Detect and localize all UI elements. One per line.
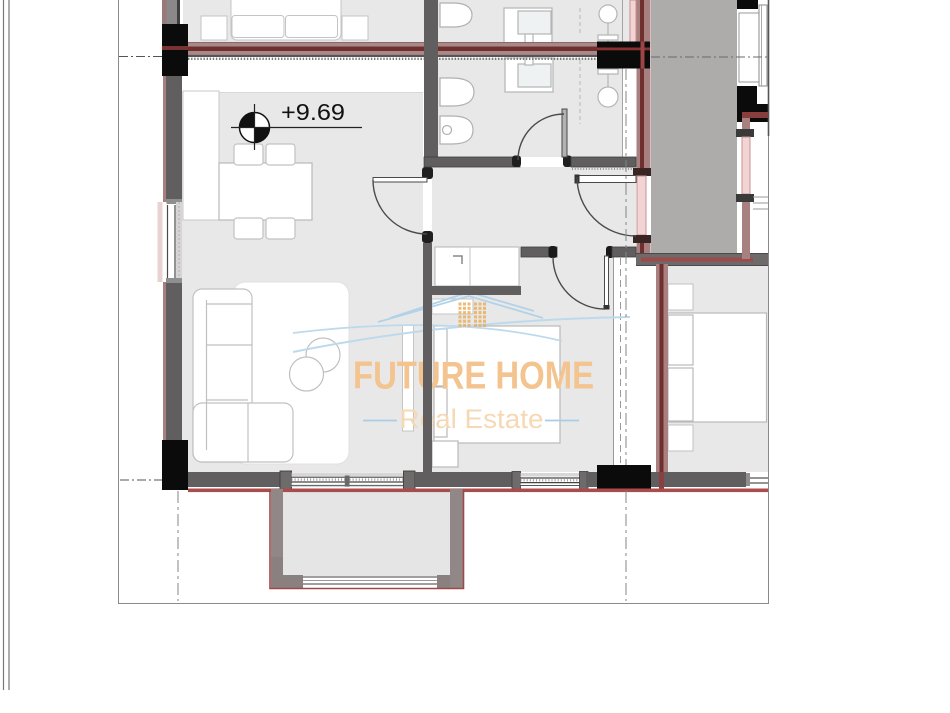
svg-text:+9.69: +9.69 xyxy=(281,99,345,125)
svg-text:Real Estate: Real Estate xyxy=(400,404,544,434)
svg-text:FUTURE HOME: FUTURE HOME xyxy=(353,355,594,398)
